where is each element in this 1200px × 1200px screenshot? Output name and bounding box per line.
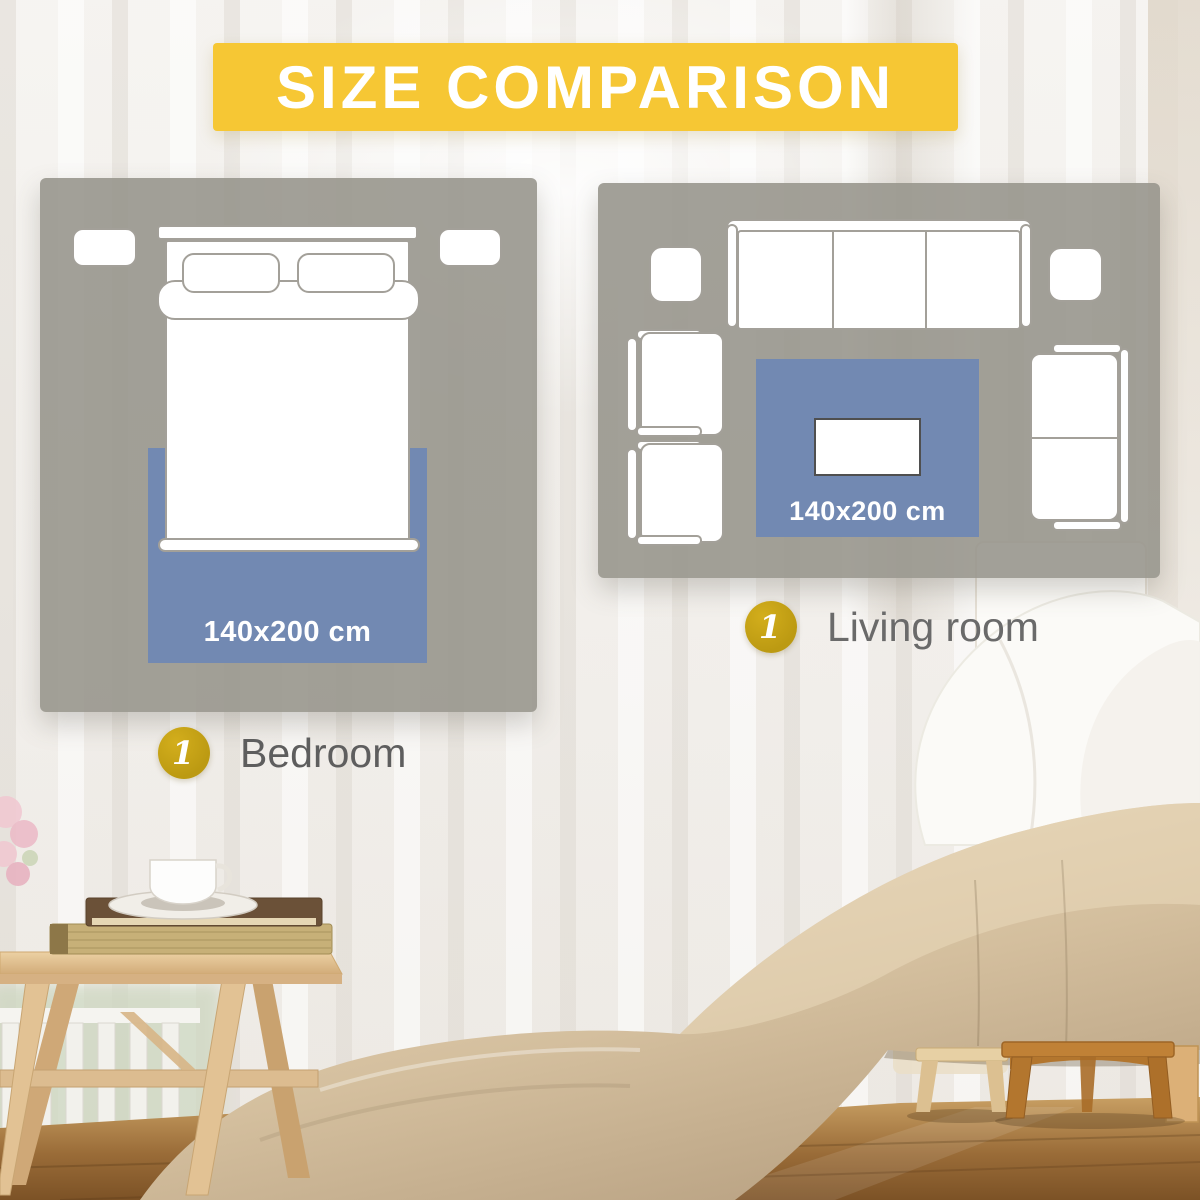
armchair2-backrest-shape	[626, 448, 638, 540]
product-infographic: SIZE COMPARISON 140x200 cm 140x200 cm	[0, 0, 1200, 1200]
loveseat-armrest-bottom-shape	[1052, 520, 1122, 531]
step-stools	[907, 1042, 1185, 1129]
coffee-table-shape	[814, 418, 921, 476]
bed-footboard-shape	[158, 538, 420, 552]
living-room-rug: 140x200 cm	[756, 359, 979, 537]
sofa-armrest-right-shape	[1020, 224, 1032, 328]
bedroom-label: Bedroom	[240, 730, 406, 777]
loveseat-seats-shape	[1030, 353, 1119, 521]
living-room-rug-size-label: 140x200 cm	[789, 496, 946, 527]
loveseat-backrest-shape	[1119, 348, 1130, 524]
pink-flowers	[0, 796, 38, 886]
armchair2-armrest-bottom-shape	[636, 535, 702, 546]
living-room-floorplan-panel: 140x200 cm	[598, 183, 1160, 578]
loveseat-armrest-top-shape	[1052, 343, 1122, 354]
banner-title: SIZE COMPARISON	[276, 53, 895, 122]
bedroom-caption: 1 Bedroom	[158, 727, 406, 779]
side-table-left-shape	[649, 246, 703, 303]
armchair1-seat-shape	[640, 332, 724, 436]
armchair2-seat-shape	[640, 443, 724, 543]
bed-pillow-left-shape	[182, 253, 280, 293]
nightstand-left-shape	[72, 228, 137, 267]
size-comparison-banner: SIZE COMPARISON	[213, 43, 958, 131]
side-table-right-shape	[1048, 247, 1103, 302]
coffee-cup	[109, 860, 257, 919]
bed-pillow-right-shape	[297, 253, 395, 293]
bedroom-marker-badge: 1	[158, 727, 210, 779]
bed-headboard-shape	[157, 225, 418, 240]
bedroom-rug-size-label: 140x200 cm	[204, 616, 372, 649]
armchair1-backrest-shape	[626, 337, 638, 432]
sofa-seats-shape	[737, 230, 1021, 330]
living-room-marker-badge: 1	[745, 601, 797, 653]
armchair1-armrest-bottom-shape	[636, 426, 702, 437]
bedroom-marker-number: 1	[172, 737, 194, 769]
living-room-caption: 1 Living room	[745, 601, 1039, 653]
living-room-label: Living room	[827, 604, 1039, 651]
nightstand-right-shape	[438, 228, 502, 267]
bedroom-floorplan-panel: 140x200 cm	[40, 178, 537, 712]
living-room-marker-number: 1	[759, 611, 781, 643]
